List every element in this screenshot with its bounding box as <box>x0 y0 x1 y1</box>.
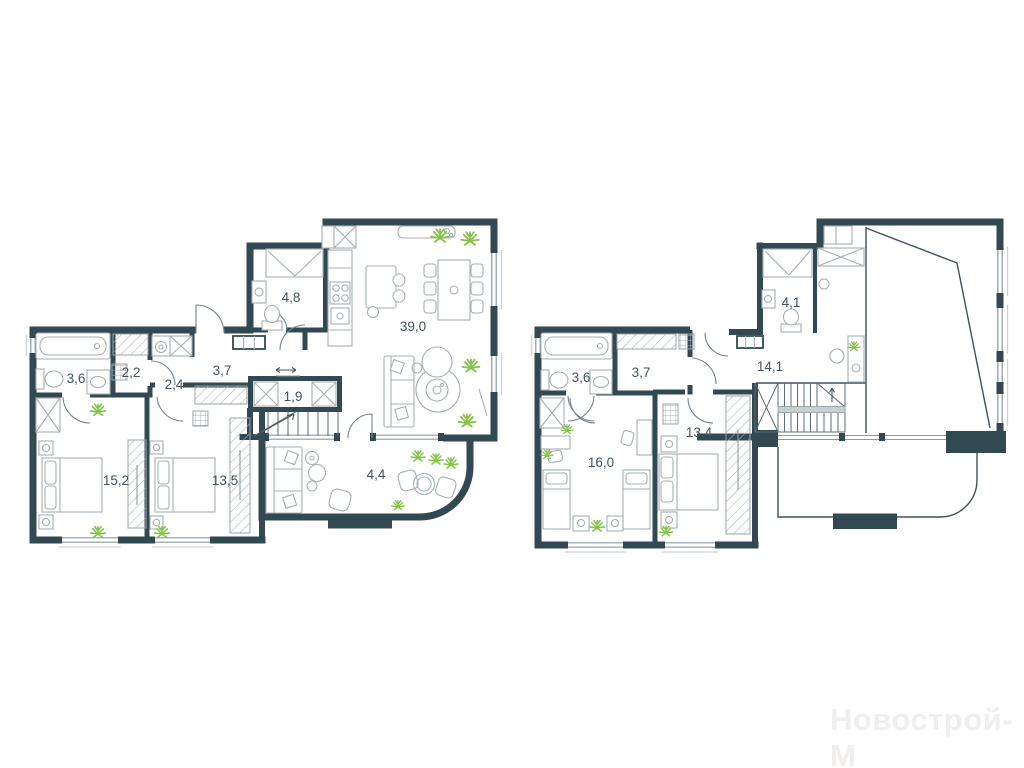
floor1-hall-furniture <box>152 336 265 356</box>
floor2-bedroom4-furniture <box>659 396 750 534</box>
floor1-bedroom1-furniture <box>36 398 146 529</box>
room-label-hall-small-f1: 2,4 <box>165 377 184 392</box>
plant-icon <box>429 454 443 464</box>
watermark: Новострой-М <box>830 702 1024 768</box>
floorplan-canvas: 3,6 2,2 2,4 3,7 4,8 39,0 1,9 15,2 13,5 4… <box>0 0 1024 768</box>
floor1-balcony-furniture <box>266 447 457 513</box>
floor1-plan: 3,6 2,2 2,4 3,7 4,8 39,0 1,9 15,2 13,5 4… <box>27 219 502 548</box>
room-label-closet-f1: 2,2 <box>122 365 141 380</box>
floor1-bedroom2-furniture <box>150 386 250 533</box>
plant-icon <box>90 404 105 415</box>
floor2-stairs <box>755 383 845 432</box>
floor2-hall-furniture <box>818 226 864 382</box>
room-label-storage-f1: 1,9 <box>284 389 303 404</box>
plant-icon <box>463 360 480 372</box>
room-label-kitchen-living: 39,0 <box>400 319 426 334</box>
room-label-corridor-f1: 3,7 <box>213 363 232 378</box>
floorplan-svg: 3,6 2,2 2,4 3,7 4,8 39,0 1,9 15,2 13,5 4… <box>0 0 1024 768</box>
plant-icon <box>461 232 479 245</box>
room-label-bedroom3: 16,0 <box>588 455 614 470</box>
plant-icon <box>155 527 170 538</box>
room-label-shower-room-f1: 4,8 <box>282 290 301 305</box>
room-label-bedroom2: 13,5 <box>212 473 238 488</box>
room-label-bedroom1: 15,2 <box>103 473 129 488</box>
floor1-stairs <box>254 411 338 436</box>
room-label-bathroom-f1: 3,6 <box>67 371 86 386</box>
plant-icon <box>561 425 573 434</box>
floor2-plan: 3,6 3,7 4,1 14,1 16,0 13,4 <box>532 219 1008 553</box>
room-label-shower-room-f2: 4,1 <box>782 295 801 310</box>
plant-icon <box>392 501 405 510</box>
plant-icon <box>411 451 425 461</box>
plant-icon <box>459 415 476 427</box>
plant-icon <box>659 526 672 536</box>
room-label-balcony: 4,4 <box>367 467 386 482</box>
room-label-bathroom-f2: 3,6 <box>572 370 591 385</box>
room-label-hall-f2: 14,1 <box>757 359 783 374</box>
plant-icon <box>444 458 458 468</box>
plant-icon <box>91 527 106 538</box>
floor2-corridor-furniture <box>617 334 694 349</box>
room-label-bedroom4: 13,4 <box>686 425 713 440</box>
room-label-corridor-f2: 3,7 <box>632 365 651 380</box>
plant-icon <box>590 521 605 532</box>
